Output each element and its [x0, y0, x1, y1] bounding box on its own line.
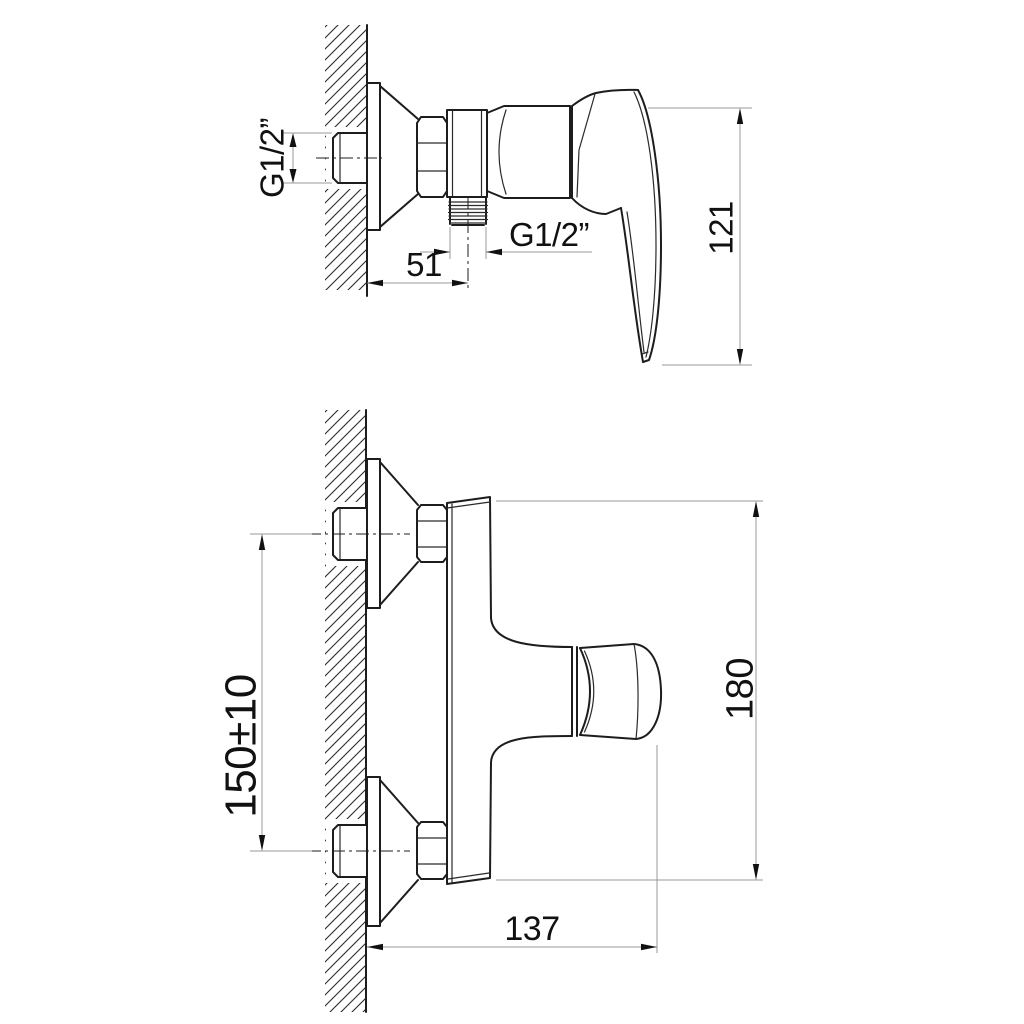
- mixer-body: [447, 497, 577, 884]
- escutcheon: [367, 83, 418, 230]
- connector-chamfers: [453, 111, 482, 196]
- lever-inner-edge: [621, 208, 643, 362]
- nut-faces: [417, 521, 447, 547]
- wall: [325, 25, 367, 296]
- nut-outline: [417, 822, 447, 879]
- dim-inlet-thread-label: G1/2”: [254, 118, 291, 198]
- body-cap-lines: [447, 502, 490, 879]
- knob-top-bottom-edges: [580, 644, 636, 739]
- handle-base-bottom: [572, 198, 621, 214]
- handle-top-edge: [572, 90, 638, 106]
- dim-outlet-thread-label: G1/2”: [509, 216, 589, 253]
- technical-drawing-page: G1/2” 51 G1/2” 121: [0, 0, 1024, 1024]
- valve-body: [447, 106, 570, 198]
- lever-ridge-2: [627, 212, 644, 352]
- handle-knob: [580, 644, 661, 739]
- handle-inner-slant: [577, 94, 595, 197]
- wall-hatch: [325, 410, 367, 1012]
- body-outline: [447, 497, 572, 884]
- dim-121-label: 121: [703, 201, 740, 255]
- escutcheon-flange: [367, 83, 380, 230]
- neck-joint-lines: [572, 647, 577, 736]
- lever-ridge-1: [634, 92, 656, 357]
- side-view: G1/2” 51 G1/2” 121: [254, 25, 752, 365]
- nut-outline: [417, 117, 447, 197]
- nut-faces: [417, 143, 447, 171]
- drawing-canvas: G1/2” 51 G1/2” 121: [0, 0, 1024, 1024]
- knob-cap-separation: [634, 644, 638, 739]
- dim-150-label: 150±10: [216, 674, 265, 818]
- nut-faces: [417, 838, 447, 864]
- nut-outline: [417, 505, 447, 562]
- lever-outer-edge: [638, 90, 661, 362]
- dim-137-label: 137: [504, 910, 559, 948]
- hex-nut: [417, 117, 447, 197]
- outlet-thread: [449, 196, 488, 292]
- dim-180-label: 180: [719, 658, 761, 720]
- front-view: 150±10 180 137: [216, 410, 763, 1012]
- body-highlight-curve: [499, 110, 506, 194]
- wall: [325, 410, 367, 1012]
- escutcheon-cone: [380, 86, 418, 227]
